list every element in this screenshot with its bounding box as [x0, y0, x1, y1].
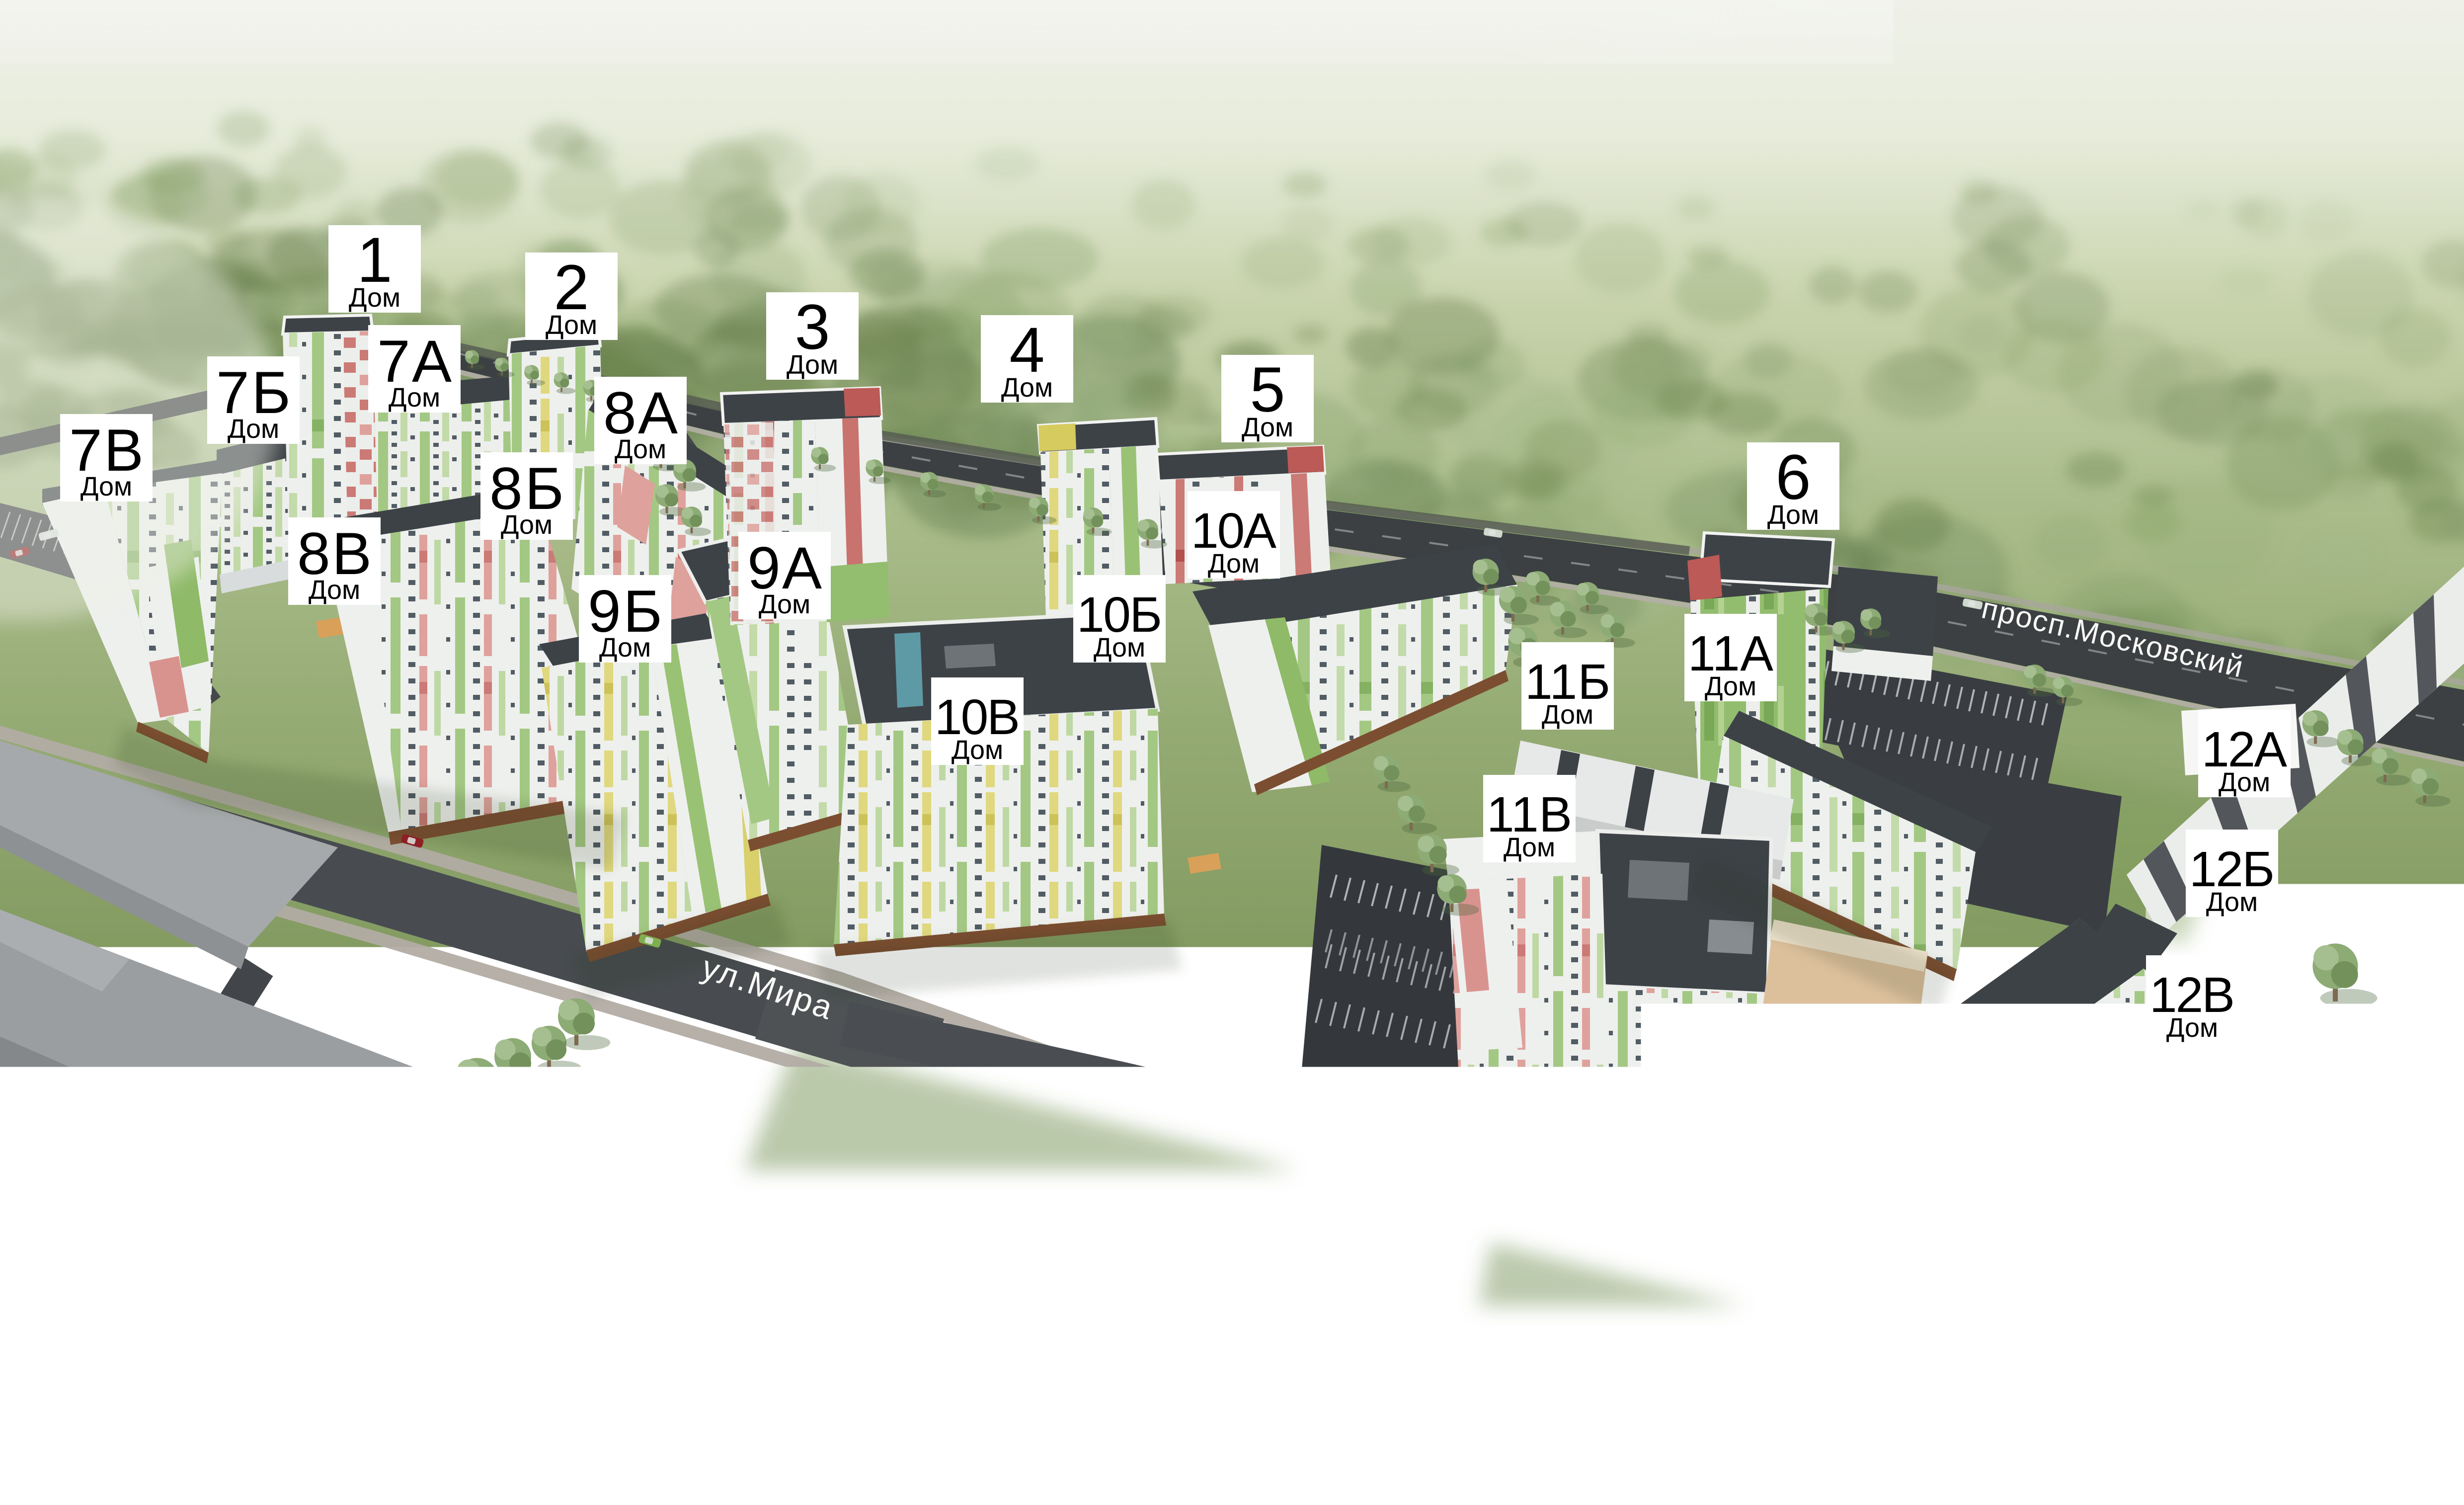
svg-text:Перспектива с птичего полета: Перспектива с птичего полета	[201, 1402, 717, 1441]
svg-text:Дом: Дом	[952, 735, 1003, 765]
svg-text:Дом: Дом	[1767, 500, 1819, 530]
svg-text:Дом: Дом	[2166, 1013, 2218, 1043]
svg-text:Дом: Дом	[787, 350, 838, 380]
svg-text:Дом: Дом	[1504, 833, 1555, 862]
svg-text:Дом: Дом	[759, 589, 810, 619]
svg-text:Дом: Дом	[546, 310, 597, 340]
svg-text:Дом: Дом	[2206, 887, 2258, 917]
svg-text:Дом: Дом	[1094, 633, 1145, 663]
svg-text:Дом: Дом	[1705, 671, 1756, 701]
svg-text:Дом: Дом	[501, 510, 553, 540]
svg-text:Дом: Дом	[389, 383, 440, 413]
svg-text:Дом: Дом	[1208, 549, 1260, 579]
svg-text:Дом: Дом	[599, 633, 651, 663]
svg-text:Дом: Дом	[1242, 413, 1293, 442]
svg-text:Дом: Дом	[1542, 700, 1593, 730]
svg-text:Дом: Дом	[349, 283, 400, 313]
svg-text:Дом: Дом	[309, 575, 360, 605]
svg-text:Дом: Дом	[615, 434, 666, 464]
svg-text:Дом: Дом	[1001, 373, 1053, 403]
svg-text:Дом: Дом	[80, 472, 132, 502]
svg-text:Дом: Дом	[2219, 767, 2270, 797]
svg-text:Дом: Дом	[228, 414, 279, 444]
